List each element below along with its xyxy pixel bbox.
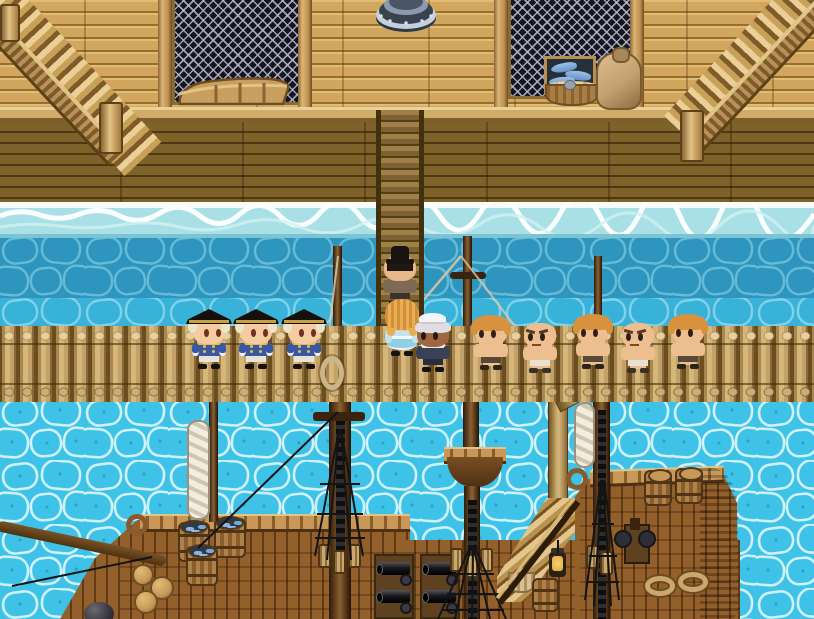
eye (540, 333, 545, 341)
eye (204, 329, 209, 337)
hair-side (471, 322, 478, 335)
hair-side (504, 322, 511, 335)
button (203, 350, 206, 353)
shoe (258, 364, 267, 369)
shoe (627, 368, 636, 373)
shoe (480, 365, 489, 370)
frown (532, 344, 541, 346)
top-hat-brim (386, 259, 414, 264)
button (298, 345, 301, 348)
arm (239, 343, 246, 356)
arm (219, 343, 226, 356)
eye (626, 333, 631, 341)
eye (491, 330, 496, 338)
arm (474, 344, 481, 357)
button (250, 345, 253, 348)
button (203, 345, 206, 348)
eye (251, 329, 256, 337)
button (212, 345, 215, 348)
shoe (690, 364, 699, 369)
arm (603, 343, 610, 356)
bald-deckhand-1[interactable] (517, 313, 563, 373)
shoe (582, 364, 591, 369)
arm (576, 343, 583, 356)
button (250, 350, 253, 353)
arm (698, 343, 705, 356)
arm (550, 347, 557, 360)
hair-side (606, 321, 613, 334)
hair-side (701, 321, 708, 334)
eye (638, 333, 643, 341)
frown (630, 344, 639, 346)
eye (593, 329, 598, 337)
shoe (493, 365, 502, 370)
bald-deckhand-2[interactable] (615, 313, 661, 373)
shoe (391, 351, 400, 356)
eye (528, 333, 533, 341)
sailor-cap (419, 313, 446, 324)
arm (523, 347, 530, 360)
eye (676, 329, 681, 337)
shirtless-sailor-2[interactable] (570, 309, 616, 369)
arm (671, 343, 678, 356)
eye (421, 332, 426, 340)
eye (299, 329, 304, 337)
arm (192, 343, 199, 356)
naval-officer-3[interactable] (281, 309, 327, 369)
eye (216, 329, 221, 337)
arm (314, 343, 321, 356)
naval-officer-2[interactable] (233, 309, 279, 369)
arm (266, 343, 273, 356)
arm (501, 344, 508, 357)
button (259, 345, 262, 348)
arm (621, 347, 628, 360)
arm (287, 343, 294, 356)
button (307, 350, 310, 353)
game-viewport[interactable] (0, 0, 814, 619)
character-layer (0, 0, 814, 619)
hat-gold-trim (189, 320, 229, 323)
button (259, 350, 262, 353)
naval-officer-1[interactable] (186, 309, 232, 369)
shoe (529, 368, 538, 373)
shirtless-sailor-1[interactable] (468, 310, 514, 370)
arm (416, 346, 423, 359)
shoe (677, 364, 686, 369)
shoe (435, 367, 444, 372)
hat-gold-trim (236, 320, 276, 323)
arm (648, 347, 655, 360)
eye (311, 329, 316, 337)
shoe (211, 364, 220, 369)
shirtless-sailor-3[interactable] (665, 309, 711, 369)
eye (688, 329, 693, 337)
shoe (640, 368, 649, 373)
eye (479, 330, 484, 338)
arm (410, 280, 417, 293)
hair-side (668, 321, 675, 334)
eye (433, 332, 438, 340)
shoe (198, 364, 207, 369)
arm (443, 346, 450, 359)
hat-gold-trim (284, 320, 324, 323)
button (298, 350, 301, 353)
shoe (293, 364, 302, 369)
shoe (542, 368, 551, 373)
button (212, 350, 215, 353)
eye (263, 329, 268, 337)
white-capped-sailor[interactable] (410, 312, 456, 372)
shoe (245, 364, 254, 369)
hair-lock (387, 328, 395, 336)
arm (383, 280, 390, 293)
eye (581, 329, 586, 337)
shoe (306, 364, 315, 369)
shoe (422, 367, 431, 372)
shoe (595, 364, 604, 369)
hair-side (573, 321, 580, 334)
button (307, 345, 310, 348)
